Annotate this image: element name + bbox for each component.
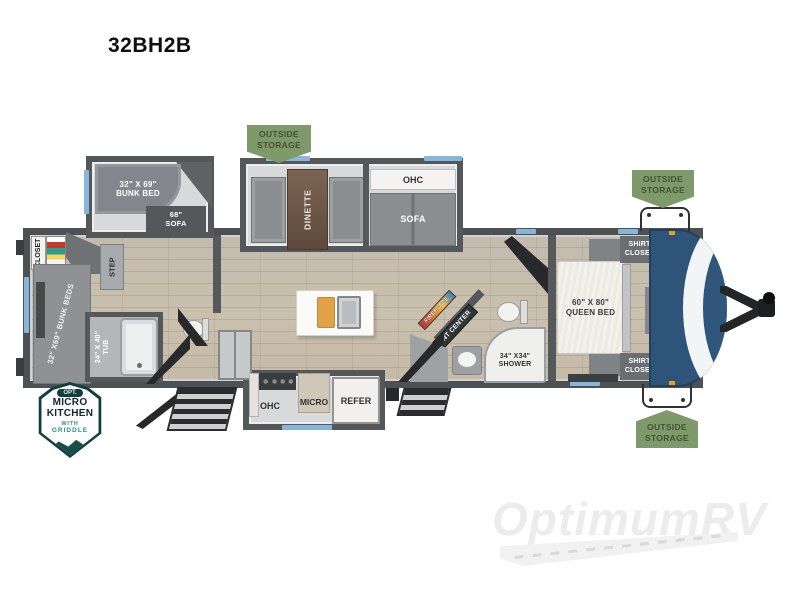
option-tag: OPT. [57, 389, 82, 397]
entry-step-box [386, 388, 399, 401]
dinette-table: DINETTE [287, 169, 328, 250]
entry-steps-2 [397, 388, 452, 416]
kitchen-island [296, 290, 374, 336]
sofa-68: 68" SOFA [146, 206, 206, 234]
dinette-bench-right [329, 177, 364, 243]
hitch-jack-knob [763, 292, 775, 304]
microwave-cabinet [298, 373, 330, 413]
queen-bed: 60" X 80" QUEEN BED [557, 261, 624, 354]
tub [120, 318, 158, 376]
range-cooktop [259, 373, 296, 390]
outside-storage-1-line2: STORAGE [247, 140, 311, 151]
queen-bed-label: QUEEN BED [558, 308, 623, 317]
entry-steps-1 [167, 387, 238, 431]
main-sofa: SOFA [370, 193, 456, 246]
dinette-bench-left [251, 177, 286, 243]
hall-window [516, 229, 536, 234]
outside-storage-badge-2: OUTSIDE STORAGE [632, 170, 694, 208]
outside-storage-2-line2: STORAGE [632, 185, 694, 196]
bunk-room-wall [213, 235, 221, 313]
main-sofa-label: SOFA [400, 214, 425, 225]
dinette-sofa-divider-wall [363, 164, 369, 246]
bedroom-bench [568, 374, 618, 382]
floorplan-title: 32BH2B [108, 34, 192, 58]
bunk-bed-label: BUNK BED [95, 189, 181, 198]
outside-storage-badge-3: OUTSIDE STORAGE [636, 410, 698, 448]
tub-drain [137, 363, 142, 368]
island-sink [337, 296, 361, 329]
tub-size-label: 24" X 40" [95, 317, 103, 377]
entry-step: STEP [100, 244, 124, 290]
tub-label-group: 24" X 40" TUB [92, 317, 114, 377]
bedroom-window-top [618, 229, 638, 234]
shower-label: SHOWER [486, 361, 544, 369]
storage-bracket-front-top [640, 207, 690, 231]
refrigerator: REFER [332, 377, 380, 424]
outside-storage-2-line1: OUTSIDE [632, 174, 694, 185]
rear-toilet-tank [202, 318, 209, 341]
bathroom-bedroom-wall [548, 235, 556, 381]
kitchen-ohc-label: OHC [250, 401, 290, 411]
bedroom-wardrobe-top [589, 239, 622, 262]
bathroom-toilet-tank [520, 300, 528, 324]
outside-storage-1-line1: OUTSIDE [247, 129, 311, 140]
kitchen-slide-window [282, 425, 332, 430]
clearance-marker [711, 241, 716, 245]
bed-headboard [622, 264, 631, 352]
floorplan-canvas: 32BH2B 32" X 69" BUNK BED 68" SOFA DINET… [0, 0, 800, 600]
option-badge-line4: GRIDDLE [52, 427, 88, 434]
front-cap: FOREST RIVER PUMA [649, 229, 727, 387]
dinette-label: DINETTE [288, 170, 327, 249]
cutting-board [317, 297, 335, 328]
rear-window [24, 277, 29, 333]
rear-bunk-frame [36, 282, 45, 338]
bunk-slide-window [84, 170, 89, 214]
bathroom-sink [457, 351, 477, 368]
tub-label: TUB [103, 317, 111, 377]
shower-size-label: 34" X34" [486, 353, 544, 361]
outside-storage-3-line2: STORAGE [636, 433, 698, 444]
sofa-window [424, 156, 462, 161]
option-badge-micro-kitchen: OPT. MICRO KITCHEN WITH GRIDDLE [39, 385, 101, 455]
overhead-cabinet-sofa: OHC [370, 169, 456, 190]
clearance-marker [669, 231, 675, 235]
storage-bracket-front-bottom [642, 384, 692, 408]
queen-bed-size-label: 60" X 80" [558, 298, 623, 307]
sofa-68-label: SOFA [146, 220, 206, 229]
option-badge-line2: KITCHEN [47, 409, 94, 420]
step-label: STEP [101, 245, 123, 289]
bunk-bed-size-label: 32" X 69" [95, 180, 181, 189]
bathroom-toilet [497, 302, 520, 322]
bedroom-wardrobe-bottom [589, 353, 622, 376]
pantry-cabinet [218, 330, 252, 380]
rear-bumper-bottom [16, 358, 24, 376]
outside-storage-3-line1: OUTSIDE [636, 422, 698, 433]
microwave-label: MICRO [294, 397, 334, 407]
rear-bumper-top [16, 240, 24, 255]
